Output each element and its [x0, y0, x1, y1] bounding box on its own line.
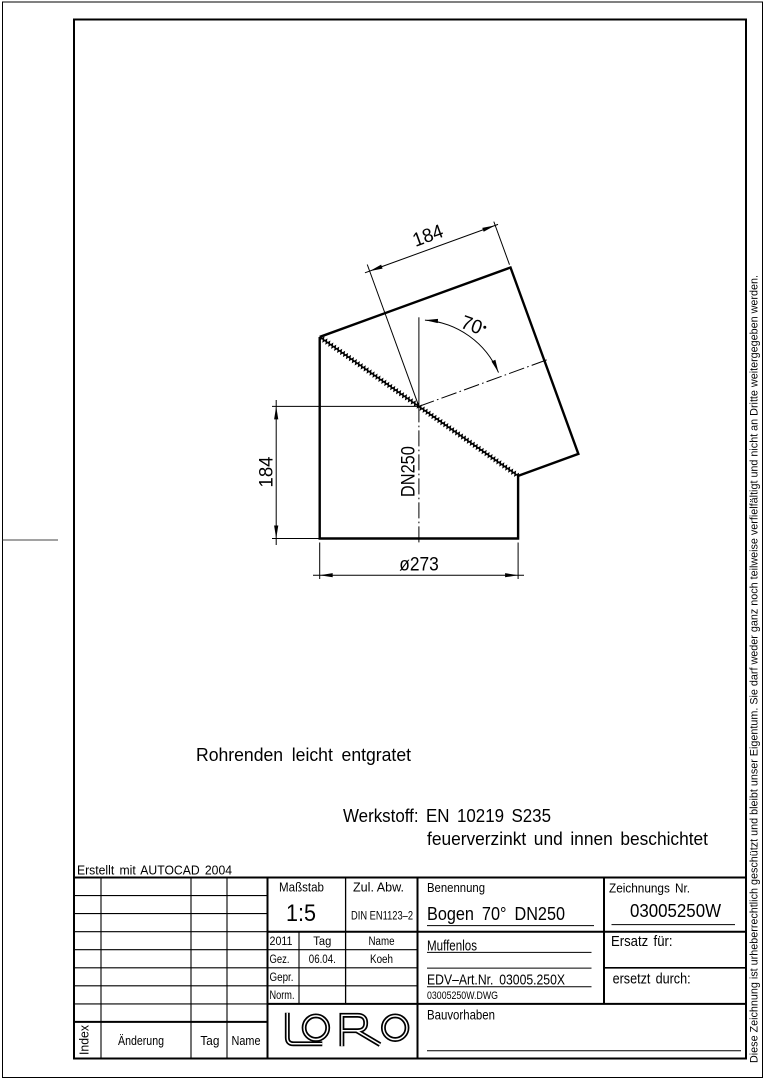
- svg-text:Tag: Tag: [313, 936, 331, 948]
- svg-text:2011: 2011: [270, 936, 293, 948]
- svg-text:Zul. Abw.: Zul. Abw.: [353, 880, 404, 895]
- svg-text:Gez.: Gez.: [270, 954, 290, 966]
- svg-text:feuerverzinkt und innen beschi: feuerverzinkt und innen beschichtet: [427, 828, 708, 849]
- svg-text:03005250W: 03005250W: [630, 901, 721, 921]
- svg-text:Muffenlos: Muffenlos: [427, 937, 477, 954]
- svg-text:Ersatz für:: Ersatz für:: [611, 933, 673, 950]
- svg-text:Tag: Tag: [200, 1034, 219, 1048]
- svg-text:Index: Index: [78, 1024, 92, 1055]
- svg-text:Maßstab: Maßstab: [279, 880, 324, 895]
- svg-text:Erstellt mit AUTOCAD 2004: Erstellt mit AUTOCAD 2004: [77, 862, 232, 877]
- svg-text:Name: Name: [369, 936, 395, 948]
- svg-text:Norm.: Norm.: [270, 990, 295, 1002]
- svg-text:06.04.: 06.04.: [309, 954, 336, 966]
- svg-text:Benennung: Benennung: [427, 880, 485, 895]
- svg-text:Koeh: Koeh: [370, 954, 393, 966]
- svg-text:Werkstoff: EN 10219 S235: Werkstoff: EN 10219 S235: [343, 805, 551, 826]
- svg-text:Gepr.: Gepr.: [270, 972, 294, 984]
- svg-text:Zeichnungs Nr.: Zeichnungs Nr.: [609, 880, 690, 895]
- svg-text:184: 184: [255, 456, 277, 487]
- svg-text:Bauvorhaben: Bauvorhaben: [427, 1007, 495, 1023]
- svg-text:Diese Zeichnung ist urheberrec: Diese Zeichnung ist urheberrechtlich ges…: [749, 275, 761, 1063]
- svg-text:1:5: 1:5: [286, 900, 316, 927]
- svg-text:Änderung: Änderung: [118, 1034, 164, 1048]
- svg-text:70: 70: [458, 311, 485, 339]
- svg-text:ersetzt durch:: ersetzt durch:: [613, 970, 691, 987]
- svg-text:184: 184: [410, 220, 447, 251]
- svg-text:Name: Name: [232, 1034, 261, 1048]
- svg-text:ø273: ø273: [399, 553, 439, 575]
- svg-text:Rohrenden leicht entgratet: Rohrenden leicht entgratet: [196, 744, 411, 765]
- svg-text:DIN EN1123–2: DIN EN1123–2: [351, 911, 413, 923]
- svg-text:DN250: DN250: [398, 446, 420, 497]
- svg-text:03005250W.DWG: 03005250W.DWG: [427, 990, 498, 1002]
- svg-text:Bogen 70° DN250: Bogen 70° DN250: [427, 903, 565, 924]
- svg-text:EDV–Art.Nr. 03005.250X: EDV–Art.Nr. 03005.250X: [427, 972, 565, 989]
